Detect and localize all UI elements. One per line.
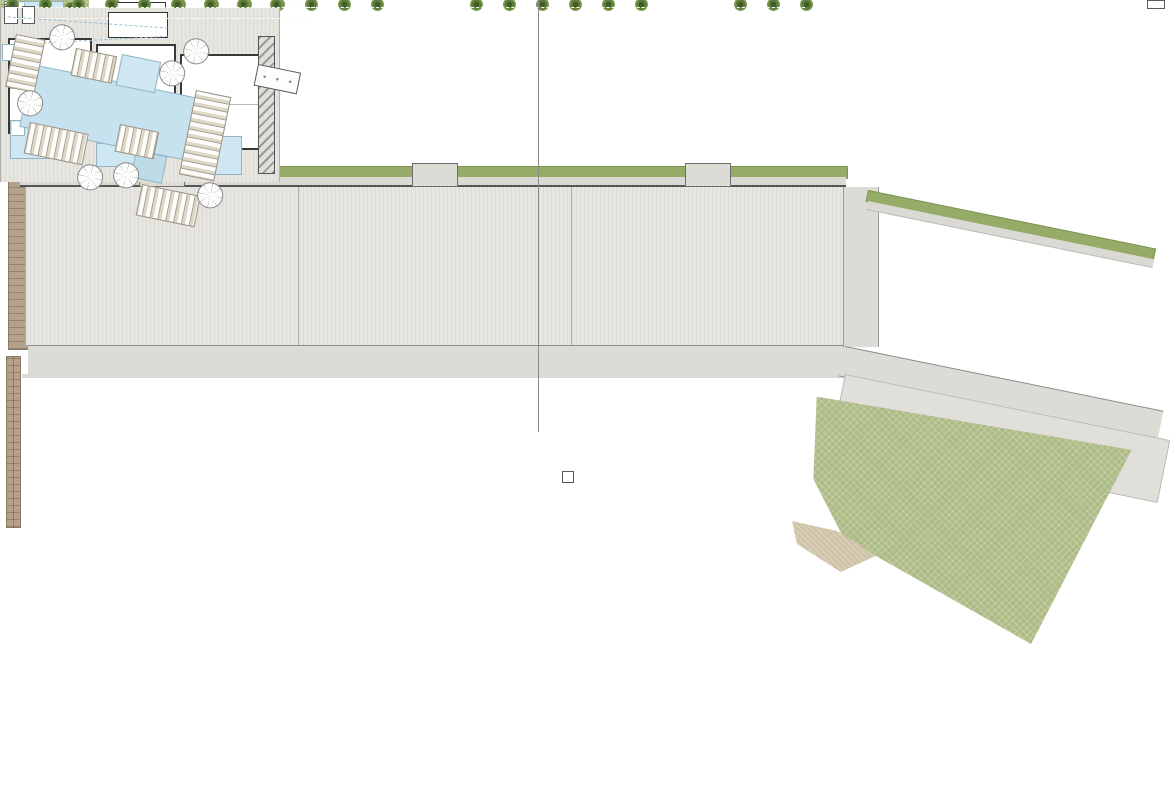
tree-icon	[503, 0, 516, 11]
villa	[116, 378, 205, 536]
block-roof-core	[685, 163, 731, 187]
tree-icon	[800, 0, 813, 11]
bed-icon	[22, 6, 35, 24]
tree-icon	[338, 0, 351, 11]
villa	[206, 378, 295, 536]
tree-icon	[470, 0, 483, 11]
tree-icon	[305, 0, 318, 11]
internal-road	[28, 345, 846, 376]
block-terrace	[571, 187, 845, 345]
tree-icon	[569, 0, 582, 11]
site-plan	[0, 0, 1170, 785]
block-terrace	[298, 187, 571, 345]
tree-icon	[767, 0, 780, 11]
tree-icon	[635, 0, 648, 11]
tree-icon	[602, 0, 615, 11]
tree-icon	[371, 0, 384, 11]
villa	[388, 378, 477, 536]
villa	[25, 378, 114, 536]
villa	[479, 378, 568, 536]
villa	[297, 378, 386, 536]
bed-icon	[4, 6, 18, 24]
villa	[569, 378, 658, 536]
block-roof-core	[412, 163, 458, 187]
table-icon	[562, 471, 574, 483]
tree-icon	[734, 0, 747, 11]
stone-wall-lower	[6, 356, 21, 528]
road-dash-line	[10, 7, 315, 8]
garage-strip	[258, 36, 275, 174]
villa	[660, 378, 749, 536]
sofa-icon	[1147, 0, 1165, 9]
room-divider	[538, 0, 539, 432]
